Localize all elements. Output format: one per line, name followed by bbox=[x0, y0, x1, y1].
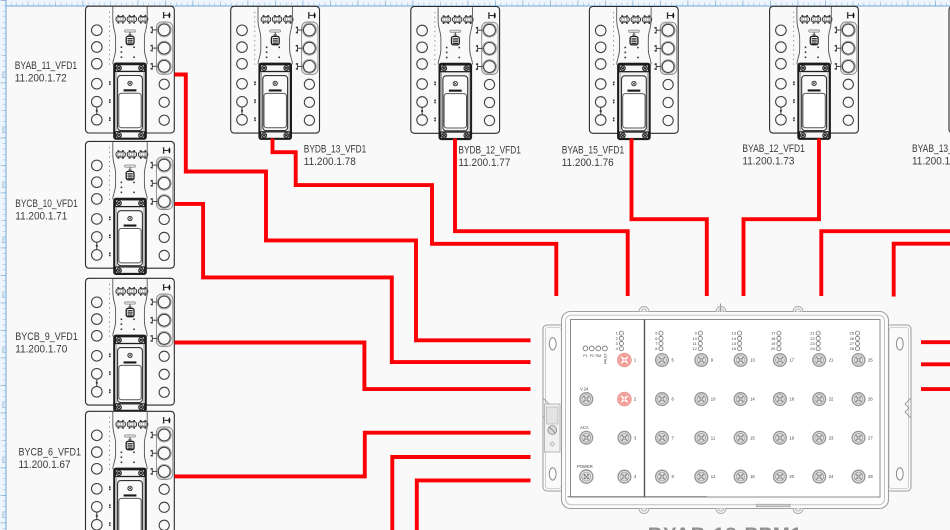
svg-text:11.200.1.74: 11.200.1.74 bbox=[912, 156, 950, 168]
svg-text:11.200.1.76: 11.200.1.76 bbox=[562, 157, 614, 169]
svg-text:27: 27 bbox=[868, 435, 873, 440]
svg-text:V.24: V.24 bbox=[580, 387, 589, 392]
svg-text:BYAB_11_VFD1: BYAB_11_VFD1 bbox=[15, 60, 78, 72]
svg-text:24: 24 bbox=[829, 474, 834, 479]
svg-text:12: 12 bbox=[692, 346, 697, 351]
svg-text:25: 25 bbox=[868, 358, 873, 363]
svg-text:BYAB_13_VFD1: BYAB_13_VFD1 bbox=[912, 143, 950, 155]
svg-text:BYCB_9_VFD1: BYCB_9_VFD1 bbox=[15, 331, 78, 343]
svg-text:BYCB_10_VFD1: BYCB_10_VFD1 bbox=[15, 198, 78, 210]
svg-text:11.200.1.71: 11.200.1.71 bbox=[15, 210, 67, 222]
svg-text:11: 11 bbox=[711, 435, 716, 440]
svg-text:11.200.1.70: 11.200.1.70 bbox=[15, 344, 67, 356]
svg-text:22: 22 bbox=[829, 397, 834, 402]
svg-text:11.200.1.72: 11.200.1.72 bbox=[15, 73, 67, 85]
svg-text:ACA: ACA bbox=[580, 425, 589, 430]
svg-text:BYDB_13_VFD1: BYDB_13_VFD1 bbox=[304, 143, 367, 155]
svg-text:POWER: POWER bbox=[577, 464, 593, 469]
svg-text:28: 28 bbox=[850, 346, 855, 351]
svg-text:250: 250 bbox=[0, 511, 5, 518]
svg-text:16: 16 bbox=[750, 474, 755, 479]
svg-text:28: 28 bbox=[868, 474, 873, 479]
svg-text:BYAB_12_VFD1: BYAB_12_VFD1 bbox=[742, 143, 805, 155]
svg-text:20: 20 bbox=[771, 346, 776, 351]
svg-text:650: 650 bbox=[0, 71, 5, 78]
svg-text:20: 20 bbox=[789, 474, 794, 479]
svg-text:24: 24 bbox=[810, 346, 815, 351]
svg-text:300: 300 bbox=[0, 456, 5, 463]
svg-text:BYCB_6_VFD1: BYCB_6_VFD1 bbox=[19, 447, 82, 459]
svg-text:550: 550 bbox=[0, 181, 5, 188]
svg-text:RM: RM bbox=[596, 354, 602, 358]
svg-text:11.200.1.77: 11.200.1.77 bbox=[458, 157, 510, 169]
svg-text:15: 15 bbox=[750, 435, 755, 440]
svg-text:19: 19 bbox=[789, 435, 794, 440]
svg-text:500: 500 bbox=[0, 236, 5, 243]
svg-text:16: 16 bbox=[732, 346, 737, 351]
svg-text:11.200.1.73: 11.200.1.73 bbox=[742, 155, 794, 167]
svg-text:BYDB_12_VFD1: BYDB_12_VFD1 bbox=[458, 144, 521, 156]
svg-text:17: 17 bbox=[789, 358, 794, 363]
svg-text:18: 18 bbox=[789, 397, 794, 402]
svg-text:21: 21 bbox=[829, 358, 834, 363]
svg-text:14: 14 bbox=[750, 397, 755, 402]
svg-text:26: 26 bbox=[868, 397, 873, 402]
svg-text:11.200.1.78: 11.200.1.78 bbox=[304, 156, 356, 168]
svg-text:P1: P1 bbox=[583, 354, 587, 358]
svg-text:23: 23 bbox=[829, 435, 834, 440]
svg-text:FAULT: FAULT bbox=[603, 352, 607, 364]
svg-text:12: 12 bbox=[711, 474, 716, 479]
svg-text:BYAB-18-PPM1: BYAB-18-PPM1 bbox=[648, 523, 803, 530]
svg-text:10: 10 bbox=[711, 397, 716, 402]
svg-text:600: 600 bbox=[0, 126, 5, 133]
svg-text:11.200.1.67: 11.200.1.67 bbox=[19, 459, 71, 471]
svg-text:450: 450 bbox=[0, 291, 5, 298]
svg-text:350: 350 bbox=[0, 401, 5, 408]
svg-text:400: 400 bbox=[0, 346, 5, 353]
svg-text:13: 13 bbox=[750, 358, 755, 363]
svg-text:P2: P2 bbox=[590, 354, 594, 358]
svg-text:BYAB_15_VFD1: BYAB_15_VFD1 bbox=[562, 144, 625, 156]
